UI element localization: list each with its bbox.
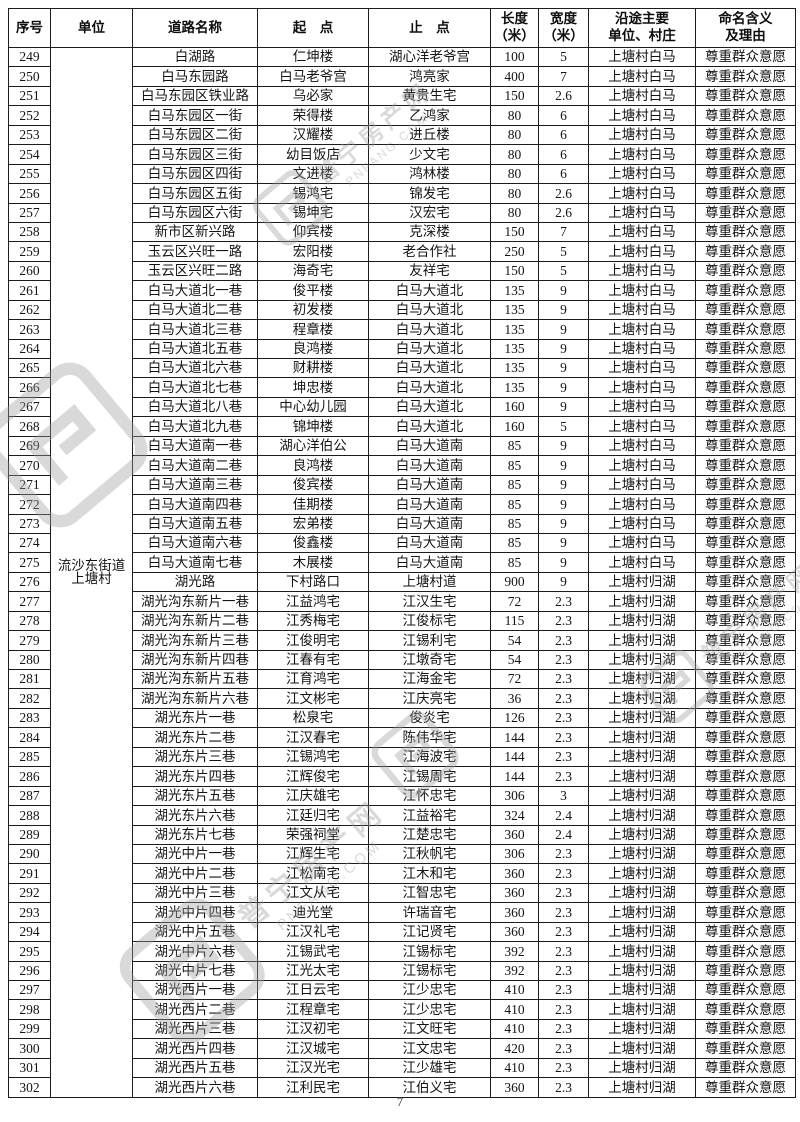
cell-width: 9 (539, 436, 589, 455)
cell-length: 900 (491, 572, 539, 591)
cell-no: 275 (9, 553, 51, 572)
cell-end: 白马大道南 (369, 553, 491, 572)
cell-road: 湖光西片一巷 (133, 981, 258, 1000)
cell-area: 上塘村白马 (589, 320, 696, 339)
cell-width: 6 (539, 106, 589, 125)
cell-road: 湖光西片三巷 (133, 1019, 258, 1038)
cell-width: 9 (539, 320, 589, 339)
cell-no: 288 (9, 806, 51, 825)
cell-end: 白马大道南 (369, 436, 491, 455)
cell-reason: 尊重群众意愿 (696, 359, 796, 378)
cell-no: 283 (9, 708, 51, 727)
cell-reason: 尊重群众意愿 (696, 747, 796, 766)
cell-start: 江程章宅 (258, 1000, 369, 1019)
cell-width: 9 (539, 475, 589, 494)
cell-area: 上塘村白马 (589, 495, 696, 514)
cell-start: 江益鸿宅 (258, 592, 369, 611)
cell-road: 新市区新兴路 (133, 222, 258, 241)
cell-start: 江辉生宅 (258, 844, 369, 863)
cell-road: 白马大道北六巷 (133, 359, 258, 378)
cell-no: 258 (9, 222, 51, 241)
cell-start: 松泉宅 (258, 708, 369, 727)
header-unit: 单位 (51, 9, 133, 48)
cell-area: 上塘村归湖 (589, 767, 696, 786)
cell-start: 俊平楼 (258, 281, 369, 300)
cell-road: 白马大道北八巷 (133, 397, 258, 416)
cell-width: 6 (539, 164, 589, 183)
cell-start: 坤忠楼 (258, 378, 369, 397)
cell-road: 湖光东片一巷 (133, 708, 258, 727)
cell-area: 上塘村归湖 (589, 1000, 696, 1019)
cell-reason: 尊重群众意愿 (696, 981, 796, 1000)
cell-road: 玉云区兴旺一路 (133, 242, 258, 261)
cell-end: 白马大道北 (369, 359, 491, 378)
cell-no: 290 (9, 844, 51, 863)
cell-length: 80 (491, 145, 539, 164)
cell-length: 135 (491, 339, 539, 358)
cell-length: 85 (491, 436, 539, 455)
cell-end: 白马大道南 (369, 475, 491, 494)
cell-start: 江春有宅 (258, 650, 369, 669)
cell-no: 296 (9, 961, 51, 980)
cell-length: 135 (491, 300, 539, 319)
header-road: 道路名称 (133, 9, 258, 48)
cell-reason: 尊重群众意愿 (696, 436, 796, 455)
cell-reason: 尊重群众意愿 (696, 572, 796, 591)
cell-length: 144 (491, 767, 539, 786)
cell-no: 267 (9, 397, 51, 416)
header-length: 长度 （米） (491, 9, 539, 48)
cell-end: 白马大道北 (369, 300, 491, 319)
cell-road: 湖光沟东新片五巷 (133, 670, 258, 689)
cell-length: 115 (491, 611, 539, 630)
cell-length: 410 (491, 981, 539, 1000)
cell-no: 261 (9, 281, 51, 300)
cell-road: 白马大道南二巷 (133, 456, 258, 475)
cell-width: 2.3 (539, 981, 589, 1000)
cell-end: 江少忠宅 (369, 1000, 491, 1019)
cell-length: 54 (491, 631, 539, 650)
cell-length: 360 (491, 922, 539, 941)
cell-area: 上塘村白马 (589, 533, 696, 552)
cell-reason: 尊重群众意愿 (696, 708, 796, 727)
cell-road: 白马大道北七巷 (133, 378, 258, 397)
cell-no: 300 (9, 1039, 51, 1058)
cell-end: 友祥宅 (369, 261, 491, 280)
cell-end: 江智忠宅 (369, 883, 491, 902)
cell-no: 292 (9, 883, 51, 902)
cell-end: 江文旺宅 (369, 1019, 491, 1038)
cell-end: 白马大道南 (369, 533, 491, 552)
cell-width: 2.6 (539, 203, 589, 222)
cell-width: 2.3 (539, 747, 589, 766)
cell-start: 宏弟楼 (258, 514, 369, 533)
cell-start: 江松南宅 (258, 864, 369, 883)
cell-no: 262 (9, 300, 51, 319)
cell-area: 上塘村白马 (589, 184, 696, 203)
unit-line-2: 上塘村 (51, 572, 132, 586)
header-no: 序号 (9, 9, 51, 48)
cell-road: 湖光中片二巷 (133, 864, 258, 883)
cell-length: 410 (491, 1019, 539, 1038)
cell-start: 汉耀楼 (258, 125, 369, 144)
cell-length: 72 (491, 670, 539, 689)
cell-no: 286 (9, 767, 51, 786)
cell-start: 江锡武宅 (258, 942, 369, 961)
cell-no: 301 (9, 1058, 51, 1077)
cell-road: 白马东园路 (133, 67, 258, 86)
cell-road: 湖光东片六巷 (133, 806, 258, 825)
cell-width: 2.3 (539, 689, 589, 708)
cell-road: 白马东园区一街 (133, 106, 258, 125)
cell-end: 江汉生宅 (369, 592, 491, 611)
cell-width: 2.3 (539, 631, 589, 650)
cell-area: 上塘村白马 (589, 281, 696, 300)
cell-width: 2.6 (539, 184, 589, 203)
cell-start: 海奇宅 (258, 261, 369, 280)
cell-road: 湖光路 (133, 572, 258, 591)
cell-start: 锡鸿宅 (258, 184, 369, 203)
cell-end: 江益裕宅 (369, 806, 491, 825)
cell-length: 85 (491, 495, 539, 514)
cell-reason: 尊重群众意愿 (696, 631, 796, 650)
cell-no: 294 (9, 922, 51, 941)
cell-length: 306 (491, 786, 539, 805)
cell-width: 9 (539, 339, 589, 358)
cell-length: 54 (491, 650, 539, 669)
cell-no: 272 (9, 495, 51, 514)
cell-length: 126 (491, 708, 539, 727)
table-body: 249 流沙东街道 上塘村 白湖路 仁坤楼 湖心洋老爷宫 100 5 上塘村白马… (9, 48, 796, 1098)
cell-reason: 尊重群众意愿 (696, 300, 796, 319)
cell-end: 白马大道北 (369, 320, 491, 339)
cell-road: 湖光沟东新片一巷 (133, 592, 258, 611)
cell-width: 2.3 (539, 883, 589, 902)
cell-length: 85 (491, 533, 539, 552)
cell-start: 佳期楼 (258, 495, 369, 514)
cell-no: 295 (9, 942, 51, 961)
cell-area: 上塘村归湖 (589, 650, 696, 669)
cell-reason: 尊重群众意愿 (696, 86, 796, 105)
cell-width: 2.3 (539, 767, 589, 786)
cell-no: 260 (9, 261, 51, 280)
cell-start: 江辉俊宅 (258, 767, 369, 786)
cell-end: 白马大道南 (369, 514, 491, 533)
cell-width: 2.3 (539, 942, 589, 961)
cell-start: 江庆雄宅 (258, 786, 369, 805)
table-row: 249 流沙东街道 上塘村 白湖路 仁坤楼 湖心洋老爷宫 100 5 上塘村白马… (9, 48, 796, 67)
cell-end: 进丘楼 (369, 125, 491, 144)
cell-area: 上塘村归湖 (589, 825, 696, 844)
cell-reason: 尊重群众意愿 (696, 650, 796, 669)
cell-length: 72 (491, 592, 539, 611)
cell-reason: 尊重群众意愿 (696, 942, 796, 961)
cell-length: 135 (491, 281, 539, 300)
cell-no: 277 (9, 592, 51, 611)
cell-width: 2.6 (539, 86, 589, 105)
cell-length: 410 (491, 1058, 539, 1077)
cell-start: 江汉光宅 (258, 1058, 369, 1077)
cell-length: 400 (491, 67, 539, 86)
cell-end: 白马大道南 (369, 495, 491, 514)
cell-end: 少文宅 (369, 145, 491, 164)
cell-start: 良鸿楼 (258, 339, 369, 358)
cell-no: 257 (9, 203, 51, 222)
cell-end: 江锡周宅 (369, 767, 491, 786)
cell-reason: 尊重群众意愿 (696, 281, 796, 300)
cell-reason: 尊重群众意愿 (696, 261, 796, 280)
cell-no: 285 (9, 747, 51, 766)
cell-reason: 尊重群众意愿 (696, 475, 796, 494)
cell-no: 266 (9, 378, 51, 397)
cell-end: 江文忠宅 (369, 1039, 491, 1058)
cell-width: 5 (539, 242, 589, 261)
cell-no: 269 (9, 436, 51, 455)
cell-start: 程章楼 (258, 320, 369, 339)
cell-road: 白马大道北五巷 (133, 339, 258, 358)
cell-reason: 尊重群众意愿 (696, 184, 796, 203)
cell-start: 俊宾楼 (258, 475, 369, 494)
cell-width: 9 (539, 533, 589, 552)
cell-reason: 尊重群众意愿 (696, 145, 796, 164)
cell-no: 264 (9, 339, 51, 358)
cell-length: 85 (491, 553, 539, 572)
cell-reason: 尊重群众意愿 (696, 767, 796, 786)
cell-length: 360 (491, 864, 539, 883)
cell-length: 392 (491, 942, 539, 961)
cell-area: 上塘村白马 (589, 339, 696, 358)
cell-end: 俊炎宅 (369, 708, 491, 727)
cell-road: 湖光沟东新片二巷 (133, 611, 258, 630)
cell-area: 上塘村白马 (589, 164, 696, 183)
cell-length: 135 (491, 320, 539, 339)
cell-length: 360 (491, 903, 539, 922)
cell-end: 江少雄宅 (369, 1058, 491, 1077)
cell-start: 江锡鸿宅 (258, 747, 369, 766)
cell-road: 湖光中片四巷 (133, 903, 258, 922)
cell-end: 江少忠宅 (369, 981, 491, 1000)
cell-end: 陈伟华宅 (369, 728, 491, 747)
cell-road: 白马大道南三巷 (133, 475, 258, 494)
cell-reason: 尊重群众意愿 (696, 592, 796, 611)
cell-area: 上塘村白马 (589, 378, 696, 397)
cell-width: 9 (539, 495, 589, 514)
cell-end: 白马大道南 (369, 456, 491, 475)
cell-area: 上塘村白马 (589, 300, 696, 319)
cell-road: 湖光东片三巷 (133, 747, 258, 766)
cell-road: 白马大道南六巷 (133, 533, 258, 552)
cell-area: 上塘村归湖 (589, 942, 696, 961)
cell-end: 江秋帆宅 (369, 844, 491, 863)
cell-start: 江文彬宅 (258, 689, 369, 708)
cell-reason: 尊重群众意愿 (696, 222, 796, 241)
cell-area: 上塘村归湖 (589, 1058, 696, 1077)
cell-start: 江光太宅 (258, 961, 369, 980)
cell-width: 2.3 (539, 1000, 589, 1019)
cell-start: 初发楼 (258, 300, 369, 319)
cell-reason: 尊重群众意愿 (696, 1039, 796, 1058)
cell-width: 2.3 (539, 670, 589, 689)
cell-reason: 尊重群众意愿 (696, 844, 796, 863)
cell-width: 9 (539, 514, 589, 533)
cell-no: 253 (9, 125, 51, 144)
cell-reason: 尊重群众意愿 (696, 864, 796, 883)
cell-start: 江日云宅 (258, 981, 369, 1000)
cell-no: 268 (9, 417, 51, 436)
cell-reason: 尊重群众意愿 (696, 378, 796, 397)
cell-no: 284 (9, 728, 51, 747)
cell-end: 白马大道北 (369, 339, 491, 358)
cell-area: 上塘村白马 (589, 359, 696, 378)
cell-road: 白马东园区二街 (133, 125, 258, 144)
cell-road: 湖光东片四巷 (133, 767, 258, 786)
cell-reason: 尊重群众意愿 (696, 339, 796, 358)
cell-reason: 尊重群众意愿 (696, 456, 796, 475)
cell-reason: 尊重群众意愿 (696, 164, 796, 183)
cell-start: 荣强祠堂 (258, 825, 369, 844)
cell-end: 上塘村道 (369, 572, 491, 591)
cell-length: 135 (491, 359, 539, 378)
cell-reason: 尊重群众意愿 (696, 397, 796, 416)
cell-reason: 尊重群众意愿 (696, 553, 796, 572)
cell-length: 250 (491, 242, 539, 261)
cell-end: 鸿林楼 (369, 164, 491, 183)
cell-width: 7 (539, 67, 589, 86)
cell-start: 良鸿楼 (258, 456, 369, 475)
cell-reason: 尊重群众意愿 (696, 495, 796, 514)
header-start: 起 点 (258, 9, 369, 48)
cell-area: 上塘村归湖 (589, 806, 696, 825)
cell-start: 锦坤楼 (258, 417, 369, 436)
cell-reason: 尊重群众意愿 (696, 806, 796, 825)
cell-end: 白马大道北 (369, 281, 491, 300)
cell-start: 湖心洋伯公 (258, 436, 369, 455)
cell-road: 湖光东片七巷 (133, 825, 258, 844)
cell-road: 白马大道南七巷 (133, 553, 258, 572)
cell-end: 江锡标宅 (369, 961, 491, 980)
cell-end: 江楚忠宅 (369, 825, 491, 844)
cell-road: 湖光中片五巷 (133, 922, 258, 941)
cell-start: 江俊明宅 (258, 631, 369, 650)
cell-area: 上塘村白马 (589, 203, 696, 222)
cell-end: 白马大道北 (369, 417, 491, 436)
cell-area: 上塘村归湖 (589, 631, 696, 650)
cell-area: 上塘村归湖 (589, 786, 696, 805)
cell-road: 湖光中片三巷 (133, 883, 258, 902)
cell-width: 9 (539, 281, 589, 300)
cell-start: 江汉城宅 (258, 1039, 369, 1058)
cell-width: 6 (539, 145, 589, 164)
cell-width: 9 (539, 572, 589, 591)
cell-start: 下村路口 (258, 572, 369, 591)
cell-width: 2.3 (539, 1039, 589, 1058)
cell-length: 360 (491, 883, 539, 902)
cell-reason: 尊重群众意愿 (696, 125, 796, 144)
cell-end: 江记贤宅 (369, 922, 491, 941)
cell-area: 上塘村白马 (589, 456, 696, 475)
cell-reason: 尊重群众意愿 (696, 242, 796, 261)
cell-area: 上塘村白马 (589, 125, 696, 144)
cell-length: 150 (491, 222, 539, 241)
cell-unit-merged: 流沙东街道 上塘村 (51, 48, 133, 1098)
cell-reason: 尊重群众意愿 (696, 533, 796, 552)
cell-area: 上塘村归湖 (589, 747, 696, 766)
cell-area: 上塘村归湖 (589, 903, 696, 922)
cell-reason: 尊重群众意愿 (696, 961, 796, 980)
cell-start: 宏阳楼 (258, 242, 369, 261)
cell-reason: 尊重群众意愿 (696, 883, 796, 902)
road-naming-table: 序号 单位 道路名称 起 点 止 点 长度 （米） 宽度 （米） 沿途主要 单位… (8, 8, 796, 1098)
cell-length: 100 (491, 48, 539, 67)
cell-area: 上塘村白马 (589, 261, 696, 280)
cell-end: 江锡标宅 (369, 942, 491, 961)
cell-area: 上塘村归湖 (589, 961, 696, 980)
cell-no: 265 (9, 359, 51, 378)
cell-no: 289 (9, 825, 51, 844)
cell-road: 白马大道北二巷 (133, 300, 258, 319)
cell-length: 306 (491, 844, 539, 863)
cell-end: 汉宏宅 (369, 203, 491, 222)
cell-reason: 尊重群众意愿 (696, 825, 796, 844)
cell-width: 2.3 (539, 728, 589, 747)
cell-area: 上塘村归湖 (589, 922, 696, 941)
cell-width: 9 (539, 378, 589, 397)
cell-width: 5 (539, 261, 589, 280)
cell-no: 256 (9, 184, 51, 203)
cell-width: 2.3 (539, 1019, 589, 1038)
cell-no: 255 (9, 164, 51, 183)
cell-end: 湖心洋老爷宫 (369, 48, 491, 67)
cell-road: 白湖路 (133, 48, 258, 67)
cell-start: 俊鑫楼 (258, 533, 369, 552)
cell-width: 3 (539, 786, 589, 805)
cell-end: 白马大道北 (369, 378, 491, 397)
cell-area: 上塘村白马 (589, 397, 696, 416)
cell-end: 江怀忠宅 (369, 786, 491, 805)
cell-end: 江庆亮宅 (369, 689, 491, 708)
cell-width: 7 (539, 222, 589, 241)
cell-area: 上塘村白马 (589, 475, 696, 494)
cell-reason: 尊重群众意愿 (696, 903, 796, 922)
cell-no: 291 (9, 864, 51, 883)
cell-end: 江锡利宅 (369, 631, 491, 650)
cell-no: 282 (9, 689, 51, 708)
cell-length: 150 (491, 261, 539, 280)
cell-area: 上塘村归湖 (589, 689, 696, 708)
cell-length: 144 (491, 747, 539, 766)
cell-width: 2.3 (539, 864, 589, 883)
cell-start: 财耕楼 (258, 359, 369, 378)
cell-no: 299 (9, 1019, 51, 1038)
cell-road: 湖光西片四巷 (133, 1039, 258, 1058)
cell-end: 江海波宅 (369, 747, 491, 766)
cell-width: 2.3 (539, 650, 589, 669)
cell-width: 2.3 (539, 708, 589, 727)
cell-reason: 尊重群众意愿 (696, 1058, 796, 1077)
cell-reason: 尊重群众意愿 (696, 203, 796, 222)
cell-no: 263 (9, 320, 51, 339)
cell-road: 白马东园区铁业路 (133, 86, 258, 105)
cell-no: 251 (9, 86, 51, 105)
cell-area: 上塘村白马 (589, 48, 696, 67)
cell-length: 85 (491, 475, 539, 494)
cell-road: 玉云区兴旺二路 (133, 261, 258, 280)
cell-length: 80 (491, 125, 539, 144)
cell-length: 144 (491, 728, 539, 747)
cell-road: 白马东园区三街 (133, 145, 258, 164)
cell-start: 文进楼 (258, 164, 369, 183)
cell-length: 85 (491, 514, 539, 533)
